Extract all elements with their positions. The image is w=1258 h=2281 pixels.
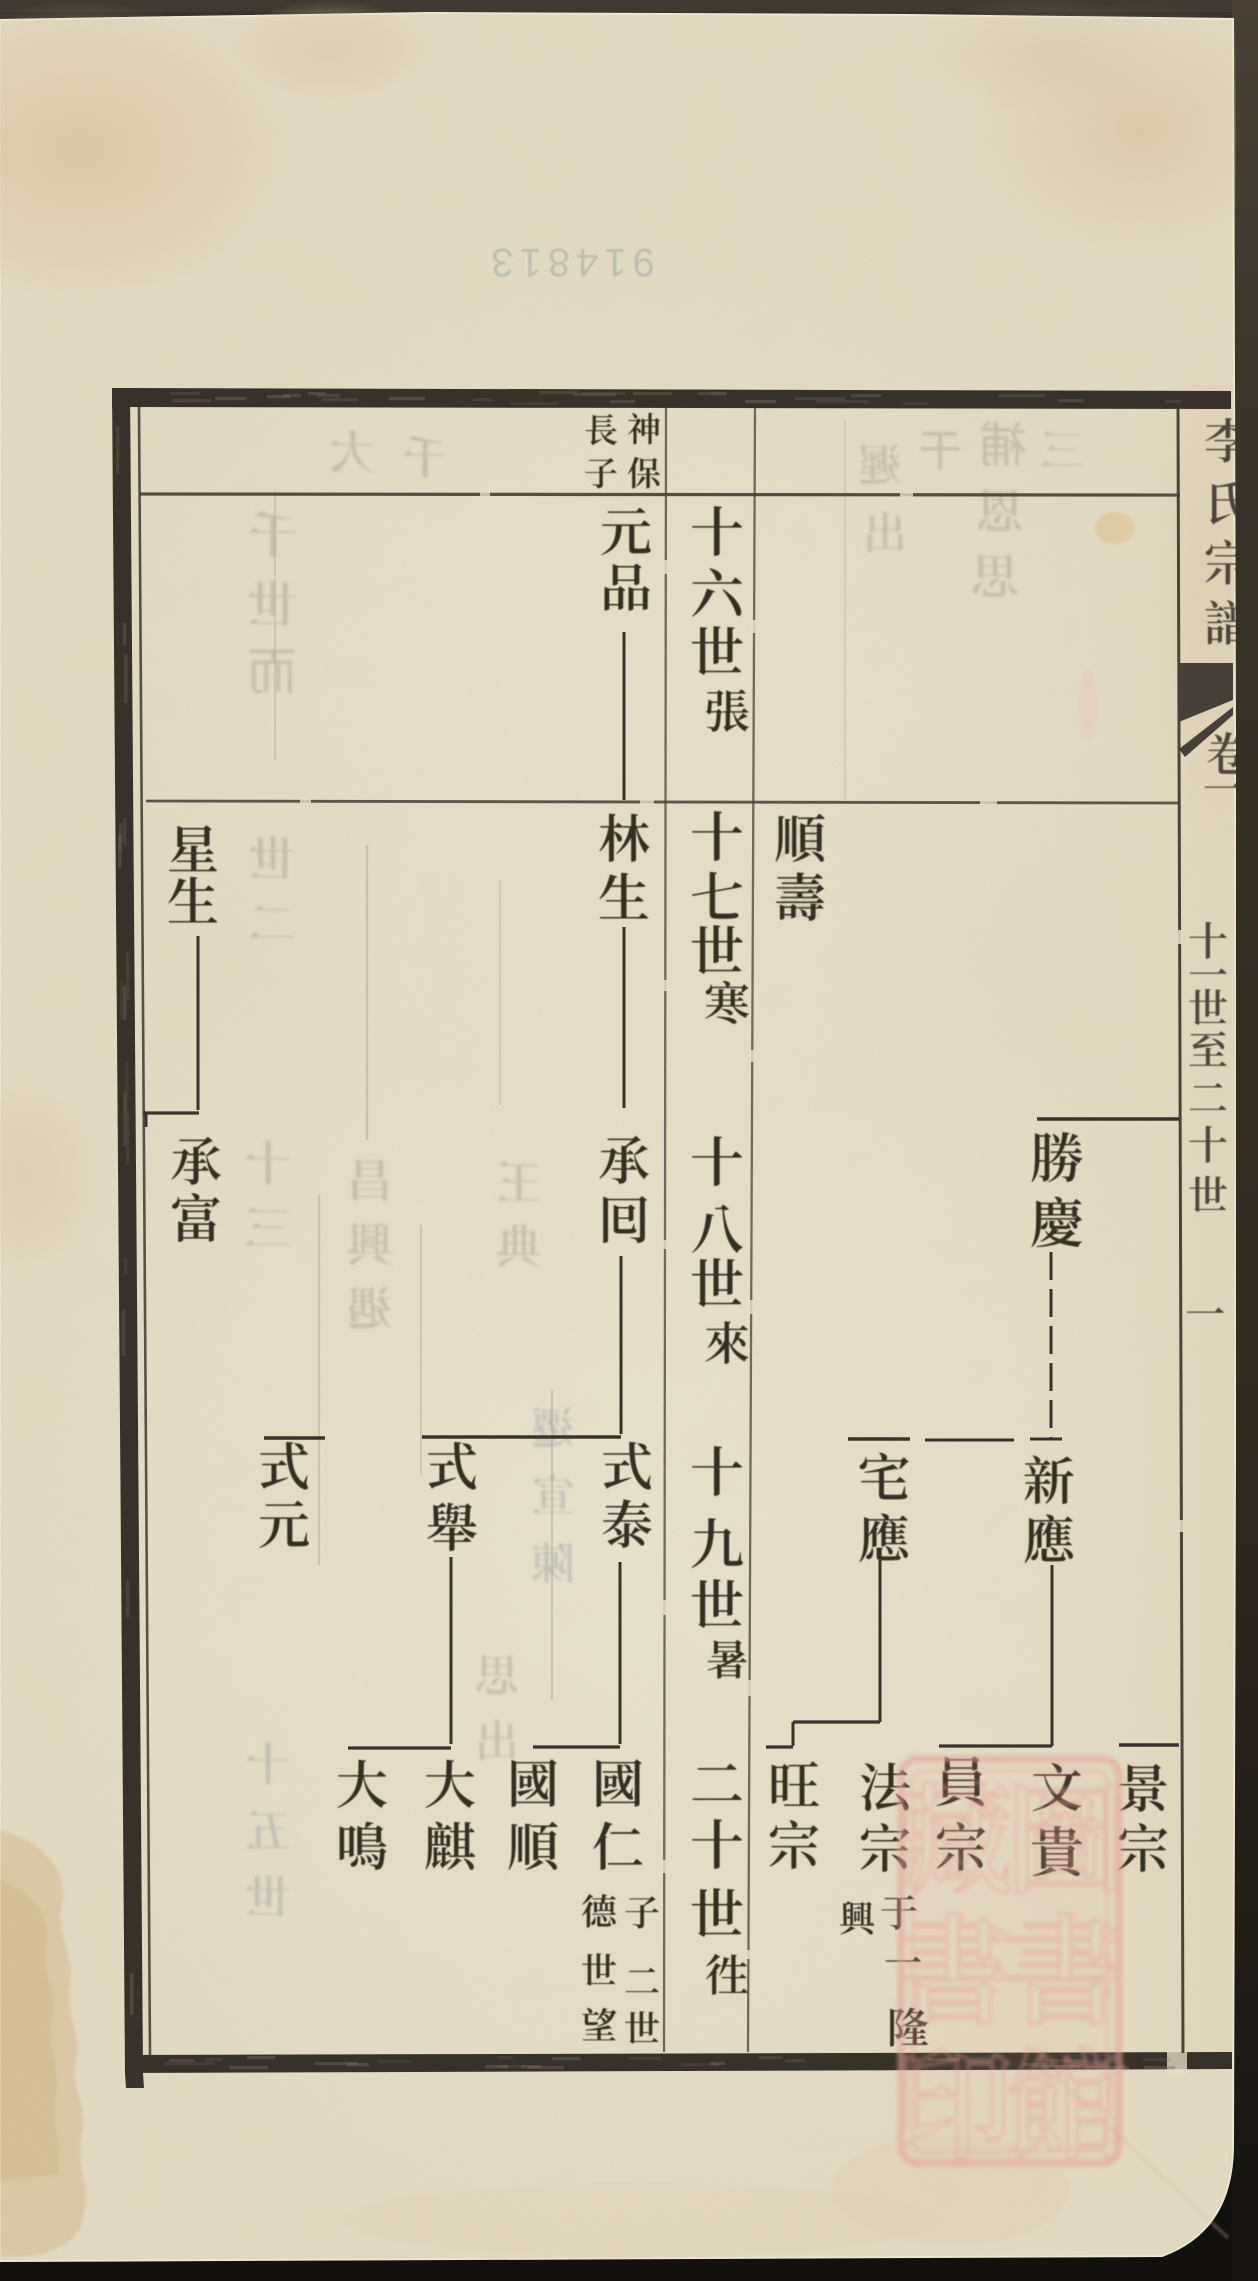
svg-text:三: 三 [244,1191,292,1260]
svg-text:興: 興 [839,1892,879,1943]
svg-text:徃: 徃 [705,1940,749,2004]
svg-text:應: 應 [1023,1499,1078,1574]
svg-text:鳴: 鳴 [336,1806,388,1881]
svg-text:宣: 宣 [531,1460,575,1524]
svg-text:世: 世 [245,1862,291,1928]
svg-text:世: 世 [690,1873,744,1950]
svg-text:富: 富 [170,1178,222,1253]
svg-text:二: 二 [248,886,296,955]
svg-text:品: 品 [600,547,652,622]
svg-text:遇: 遇 [347,1273,393,1339]
svg-text:寒: 寒 [704,968,750,1034]
svg-text:生: 生 [167,861,219,936]
svg-text:宗: 宗 [768,1805,820,1880]
svg-text:三: 三 [1040,415,1084,479]
svg-text:元: 元 [258,1484,310,1559]
svg-text:仁: 仁 [592,1806,644,1881]
svg-text:張: 張 [704,676,750,742]
svg-text:大: 大 [329,417,375,483]
svg-text:子: 子 [584,447,618,496]
svg-text:昌: 昌 [347,1145,393,1211]
svg-text:舉: 舉 [426,1487,478,1562]
svg-text:十: 十 [244,1126,292,1195]
svg-text:五: 五 [245,1795,291,1861]
svg-text:十: 十 [690,1431,744,1508]
svg-text:王: 王 [496,1147,542,1213]
svg-text:世: 世 [581,1944,617,1995]
svg-text:長: 長 [584,404,618,453]
svg-text:世: 世 [624,2002,660,2053]
svg-text:一: 一 [1185,1284,1225,1341]
svg-text:暑: 暑 [706,1628,748,1688]
svg-text:興: 興 [342,1209,393,1275]
svg-text:印: 印 [894,2012,1014,2184]
svg-text:應: 應 [858,1498,913,1573]
svg-text:世: 世 [1188,1165,1228,1222]
svg-text:館: 館 [1006,2012,1126,2184]
svg-text:914813: 914813 [485,240,654,284]
svg-text:世: 世 [247,566,297,638]
svg-text:出: 出 [863,498,907,562]
svg-text:壽: 壽 [774,857,826,932]
svg-text:神: 神 [627,403,661,452]
svg-text:德: 德 [581,1885,619,1936]
svg-text:子: 子 [624,1886,660,1937]
svg-text:泰: 泰 [601,1484,653,1559]
svg-text:千: 千 [402,422,448,488]
svg-text:千: 千 [248,496,298,568]
svg-text:囘: 囘 [598,1179,650,1254]
svg-text:十: 十 [690,1804,744,1881]
svg-text:世: 世 [248,822,296,891]
svg-text:十: 十 [690,1121,744,1198]
svg-text:保: 保 [627,447,663,496]
svg-text:順: 順 [507,1806,561,1881]
svg-text:陳: 陳 [531,1528,575,1592]
svg-text:遲: 遲 [858,430,902,494]
svg-text:二: 二 [624,1955,660,2006]
svg-text:麒: 麒 [424,1806,478,1881]
svg-text:而: 而 [247,632,297,704]
svg-text:干: 干 [918,415,962,479]
svg-text:十: 十 [1188,1115,1228,1172]
svg-text:典: 典 [491,1211,542,1277]
svg-text:慶: 慶 [1030,1182,1084,1259]
svg-text:來: 來 [704,1308,750,1374]
svg-text:思: 思 [968,539,1019,608]
svg-text:生: 生 [598,857,650,932]
svg-text:補: 補 [979,407,1027,476]
svg-text:思: 思 [472,1640,519,1704]
svg-text:恩: 恩 [973,474,1024,543]
svg-text:望: 望 [581,1999,617,2050]
svg-text:十: 十 [245,1729,291,1795]
svg-text:遷: 遷 [531,1393,575,1457]
